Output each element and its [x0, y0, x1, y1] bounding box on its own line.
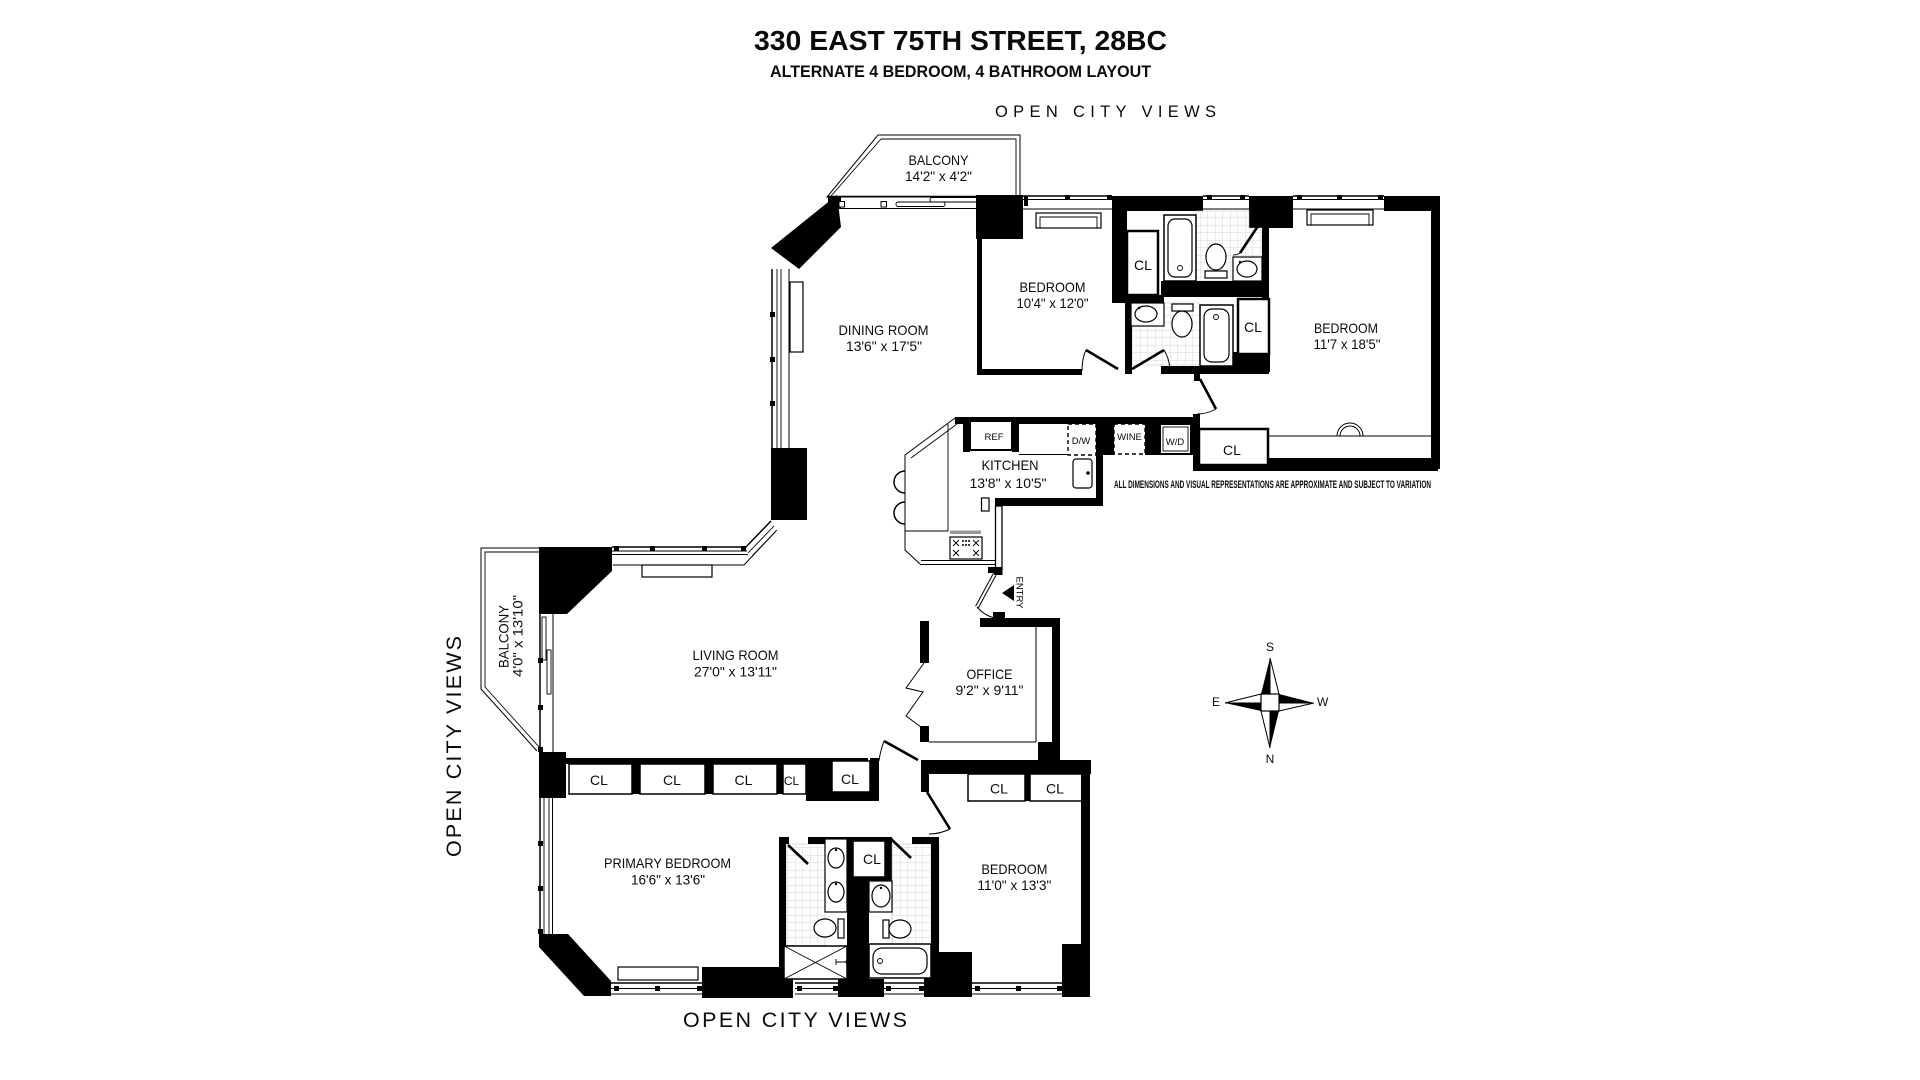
svg-text:16'6" x 13'6": 16'6" x 13'6" [631, 872, 705, 888]
svg-text:ALTERNATE 4 BEDROOM, 4 BATHROO: ALTERNATE 4 BEDROOM, 4 BATHROOM LAYOUT [770, 62, 1152, 81]
svg-text:11'0" x 13'3": 11'0" x 13'3" [977, 877, 1051, 893]
svg-text:11'7 x 18'5": 11'7 x 18'5" [1314, 336, 1381, 352]
svg-text:13'6" x 17'5": 13'6" x 17'5" [846, 338, 922, 354]
svg-text:PRIMARY BEDROOM: PRIMARY BEDROOM [604, 855, 731, 871]
svg-text:CL: CL [841, 771, 859, 787]
svg-text:W/D: W/D [1166, 437, 1185, 448]
svg-text:CL: CL [1046, 781, 1064, 797]
svg-text:27'0" x 13'11": 27'0" x 13'11" [694, 664, 777, 680]
svg-text:CL: CL [990, 781, 1008, 797]
svg-text:N: N [1266, 752, 1275, 766]
svg-text:KITCHEN: KITCHEN [982, 457, 1039, 473]
svg-text:BEDROOM: BEDROOM [1020, 279, 1086, 295]
svg-text:14'2" x 4'2": 14'2" x 4'2" [905, 168, 972, 184]
svg-text:W: W [1317, 695, 1329, 709]
svg-text:CL: CL [863, 851, 881, 867]
svg-text:CL: CL [1134, 257, 1152, 273]
svg-text:S: S [1266, 640, 1274, 654]
svg-text:CL: CL [1244, 319, 1262, 335]
svg-text:BALCONY: BALCONY [909, 152, 970, 168]
svg-text:CL: CL [735, 772, 753, 788]
svg-text:4'0" x 13'10": 4'0" x 13'10" [510, 595, 526, 677]
svg-text:BEDROOM: BEDROOM [981, 861, 1047, 877]
svg-text:BEDROOM: BEDROOM [1314, 320, 1378, 336]
svg-text:330 EAST 75TH STREET, 28BC: 330 EAST 75TH STREET, 28BC [754, 25, 1167, 56]
svg-text:9'2" x 9'11": 9'2" x 9'11" [956, 682, 1024, 698]
svg-text:10'4" x 12'0": 10'4" x 12'0" [1017, 295, 1089, 311]
svg-text:CL: CL [590, 772, 608, 788]
svg-text:ALL DIMENSIONS AND VISUAL REPR: ALL DIMENSIONS AND VISUAL REPRESENTATION… [1114, 479, 1431, 491]
svg-text:13'8" x 10'5": 13'8" x 10'5" [970, 475, 1047, 491]
svg-text:CL: CL [663, 772, 681, 788]
svg-text:D/W: D/W [1072, 436, 1091, 447]
svg-text:REF: REF [985, 432, 1004, 443]
svg-text:LIVING ROOM: LIVING ROOM [693, 647, 779, 663]
svg-text:CL: CL [784, 774, 800, 788]
svg-text:E: E [1212, 695, 1220, 709]
svg-text:OFFICE: OFFICE [967, 666, 1013, 682]
svg-text:WINE: WINE [1117, 432, 1142, 443]
svg-text:DINING ROOM: DINING ROOM [839, 322, 929, 338]
svg-text:OPEN CITY VIEWS: OPEN CITY VIEWS [442, 636, 466, 857]
svg-text:ENTRY: ENTRY [1014, 576, 1025, 609]
svg-text:CL: CL [1223, 442, 1241, 458]
